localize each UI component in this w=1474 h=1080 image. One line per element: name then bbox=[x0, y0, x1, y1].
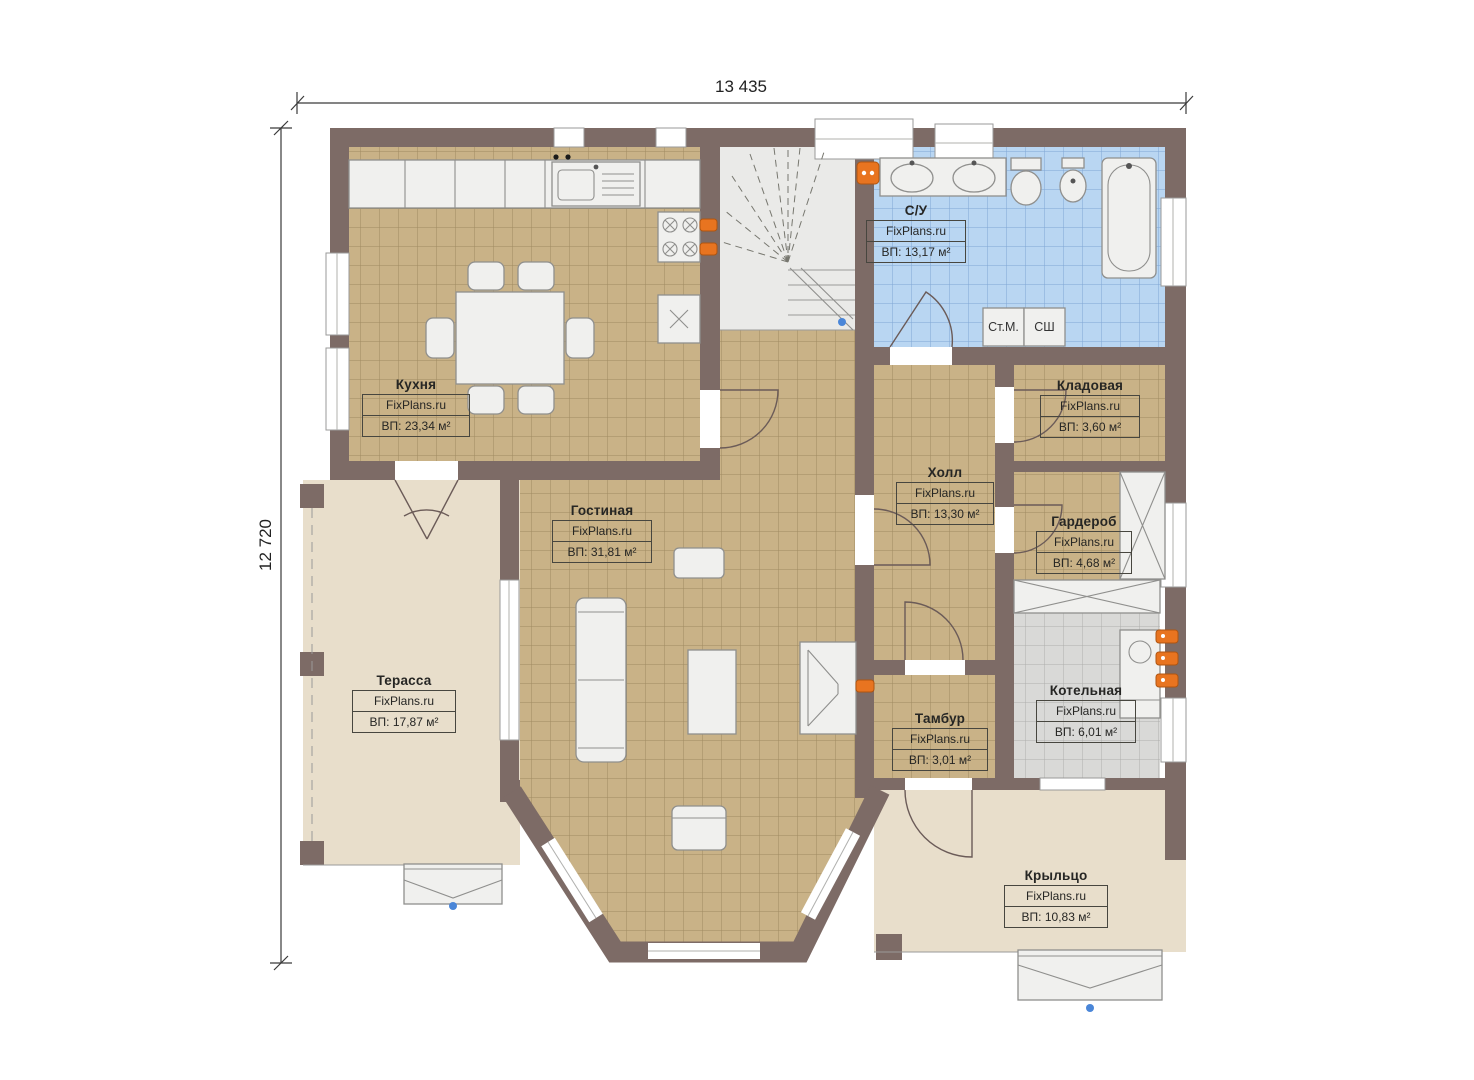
radiator bbox=[1156, 630, 1178, 643]
radiator bbox=[1156, 652, 1178, 665]
room-name: Гардероб bbox=[1036, 514, 1132, 529]
bidet bbox=[1060, 170, 1086, 202]
chair bbox=[518, 386, 554, 414]
room-name: Крыльцо bbox=[1004, 868, 1108, 883]
room-label-wardrobe: Гардероб FixPlans.ru ВП: 4,68 м² bbox=[1036, 514, 1132, 574]
chair bbox=[468, 262, 504, 290]
room-name: Кухня bbox=[362, 377, 470, 392]
room-name: Гостиная bbox=[552, 503, 652, 518]
armchair bbox=[672, 806, 726, 850]
armchair bbox=[674, 548, 724, 578]
room-name: Терасса bbox=[352, 673, 456, 688]
room-label-storage: Кладовая FixPlans.ru ВП: 3,60 м² bbox=[1040, 378, 1140, 438]
room-watermark: FixPlans.ru bbox=[353, 691, 455, 711]
room-watermark: FixPlans.ru bbox=[867, 221, 965, 241]
chair bbox=[518, 262, 554, 290]
toilet bbox=[1011, 171, 1041, 205]
radiator bbox=[1156, 674, 1178, 687]
kitchen-counter bbox=[349, 154, 700, 208]
room-label-living: Гостиная FixPlans.ru ВП: 31,81 м² bbox=[552, 503, 652, 563]
room-watermark: FixPlans.ru bbox=[553, 521, 651, 541]
room-label-hall: Холл FixPlans.ru ВП: 13,30 м² bbox=[896, 465, 994, 525]
washing-machine-label: Ст.М. bbox=[983, 308, 1024, 346]
porch-steps bbox=[1018, 950, 1162, 1012]
floor-plan: Кухня FixPlans.ru ВП: 23,34 м² С/У FixPl… bbox=[0, 0, 1474, 1080]
chair bbox=[426, 318, 454, 358]
sink bbox=[891, 164, 933, 192]
sink bbox=[953, 164, 995, 192]
terrace-steps bbox=[404, 864, 502, 910]
room-label-vestibule: Тамбур FixPlans.ru ВП: 3,01 м² bbox=[892, 711, 988, 771]
dimension-width: 13 435 bbox=[691, 77, 791, 97]
radiator bbox=[856, 680, 874, 692]
room-name: Котельная bbox=[1036, 683, 1136, 698]
chair bbox=[468, 386, 504, 414]
room-area: ВП: 3,60 м² bbox=[1041, 416, 1139, 437]
room-area: ВП: 13,17 м² bbox=[867, 241, 965, 262]
room-name: Тамбур bbox=[892, 711, 988, 726]
room-label-porch: Крыльцо FixPlans.ru ВП: 10,83 м² bbox=[1004, 868, 1108, 928]
room-watermark: FixPlans.ru bbox=[1037, 701, 1135, 721]
dimension-height: 12 720 bbox=[256, 495, 276, 595]
room-area: ВП: 13,30 м² bbox=[897, 503, 993, 524]
room-watermark: FixPlans.ru bbox=[1037, 532, 1131, 552]
room-watermark: FixPlans.ru bbox=[893, 729, 987, 749]
room-name: Холл bbox=[896, 465, 994, 480]
dryer-label: СШ bbox=[1024, 308, 1065, 346]
room-area: ВП: 17,87 м² bbox=[353, 711, 455, 732]
room-area: ВП: 3,01 м² bbox=[893, 749, 987, 770]
room-area: ВП: 10,83 м² bbox=[1005, 906, 1107, 927]
toilet-tank bbox=[1011, 158, 1041, 170]
dishwasher bbox=[658, 295, 700, 343]
coffee-table bbox=[688, 650, 736, 734]
room-area: ВП: 6,01 м² bbox=[1037, 721, 1135, 742]
room-name: С/У bbox=[866, 203, 966, 218]
stove-knob bbox=[700, 219, 717, 231]
room-label-terrace: Терасса FixPlans.ru ВП: 17,87 м² bbox=[352, 673, 456, 733]
chair bbox=[566, 318, 594, 358]
room-label-boiler: Котельная FixPlans.ru ВП: 6,01 м² bbox=[1036, 683, 1136, 743]
room-area: ВП: 31,81 м² bbox=[553, 541, 651, 562]
room-watermark: FixPlans.ru bbox=[363, 395, 469, 415]
room-label-bathroom: С/У FixPlans.ru ВП: 13,17 м² bbox=[866, 203, 966, 263]
porch-details bbox=[874, 950, 1162, 1012]
room-name: Кладовая bbox=[1040, 378, 1140, 393]
stove-knob bbox=[700, 243, 717, 255]
bidet-mount bbox=[1062, 158, 1084, 168]
room-watermark: FixPlans.ru bbox=[1005, 886, 1107, 906]
room-watermark: FixPlans.ru bbox=[1041, 396, 1139, 416]
room-watermark: FixPlans.ru bbox=[897, 483, 993, 503]
room-area: ВП: 4,68 м² bbox=[1037, 552, 1131, 573]
room-area: ВП: 23,34 м² bbox=[363, 415, 469, 436]
floor-plan-drawing bbox=[0, 0, 1474, 1080]
radiator bbox=[857, 162, 879, 184]
room-label-kitchen: Кухня FixPlans.ru ВП: 23,34 м² bbox=[362, 377, 470, 437]
